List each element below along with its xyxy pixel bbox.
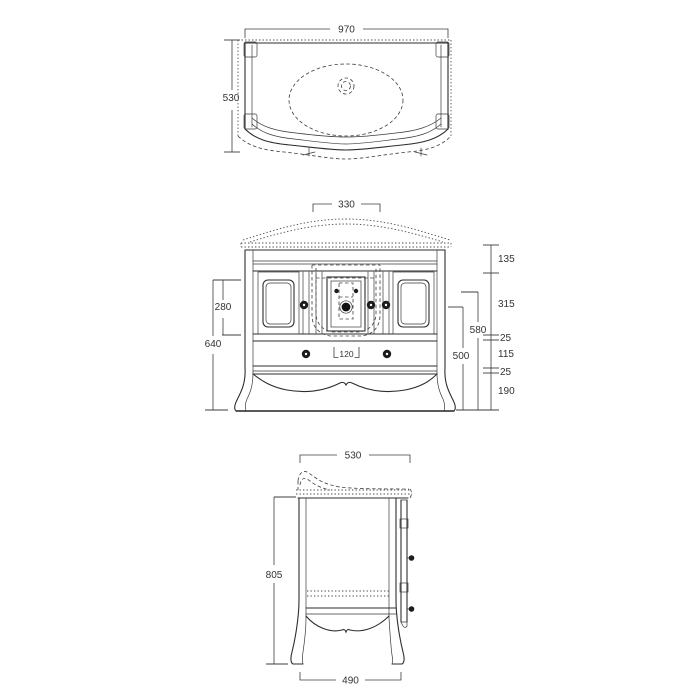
dim-side-height-label: 805 [266,570,283,581]
clip-left [303,148,315,156]
side-drawer-knob [409,606,415,612]
side-view: 530 [266,451,415,687]
front-edge-outer [245,129,448,150]
dim-front-door-opening-label: 315 [498,299,515,310]
siphon-assembly [334,283,358,319]
front-edge-mid [252,124,441,144]
dim-front-knob-height-label: 500 [453,351,470,362]
dim-front-body-height-label: 640 [205,339,222,350]
dim-top-width-label: 970 [338,25,355,36]
front-right-leg [437,368,455,411]
cabinet-plan-body [244,42,449,156]
dim-top-depth: 530 [223,40,240,152]
faucet-hole-inner [342,82,351,91]
dim-front-basin-width-label: 330 [338,200,355,211]
clip-right [415,148,427,156]
drawing-sheet: 970 530 [0,0,700,700]
dim-front-drawer-height-label: 115 [498,349,514,360]
dim-front-knob-height: 500 [448,307,470,410]
side-back-leg [291,600,306,664]
right-door [393,272,434,334]
dim-front-leg-height-label: 190 [498,386,515,397]
dim-side-height: 805 [266,497,296,664]
faucet-hole-outer [338,78,354,94]
basin-ellipse [289,64,403,136]
left-door [258,272,299,334]
technical-drawing-svg: 970 530 [0,0,700,700]
side-apron [306,616,389,632]
dim-front-basin-width: 330 [313,200,380,213]
dim-side-base-depth: 490 [300,672,401,687]
countertop-outline [238,40,451,159]
dim-front-rail-upper-label: 25 [500,333,512,344]
dim-front-door-height-label: 280 [215,302,232,313]
corner-post-back-right [436,42,449,57]
drawer-front: 120 [302,347,391,359]
front-edge-inner [252,118,441,137]
dim-front-door-height: 280 [213,280,241,335]
dim-front-body-height: 640 [205,280,228,410]
side-door-knob [409,555,415,561]
corner-post-back-left [244,42,257,57]
dim-top-depth-label: 530 [223,93,240,104]
dim-side-base-depth-label: 490 [342,676,359,687]
dim-front-siphon-width-label: 120 [339,349,353,359]
front-left-leg [235,368,253,411]
dim-front-siphon-width: 120 [334,347,359,359]
dim-front-counter-height-label: 135 [498,254,515,265]
front-view: 330 [205,200,515,412]
counter-side-profile [296,471,412,498]
cabinet-side-body [298,498,414,622]
drain-icon [342,303,351,312]
top-view: 970 530 [223,25,451,160]
faucet-bolt-left [334,289,338,293]
counter-front-profile [241,219,451,247]
dim-front-drain-height-label: 580 [470,325,487,336]
side-front-leg [389,600,407,664]
front-apron [253,374,437,392]
dim-front-rail-lower-label: 25 [500,367,512,378]
dim-side-depth: 530 [300,451,410,464]
faucet-bolt-right [354,289,358,293]
dim-top-width: 970 [245,25,448,39]
dim-side-depth-label: 530 [345,451,362,462]
